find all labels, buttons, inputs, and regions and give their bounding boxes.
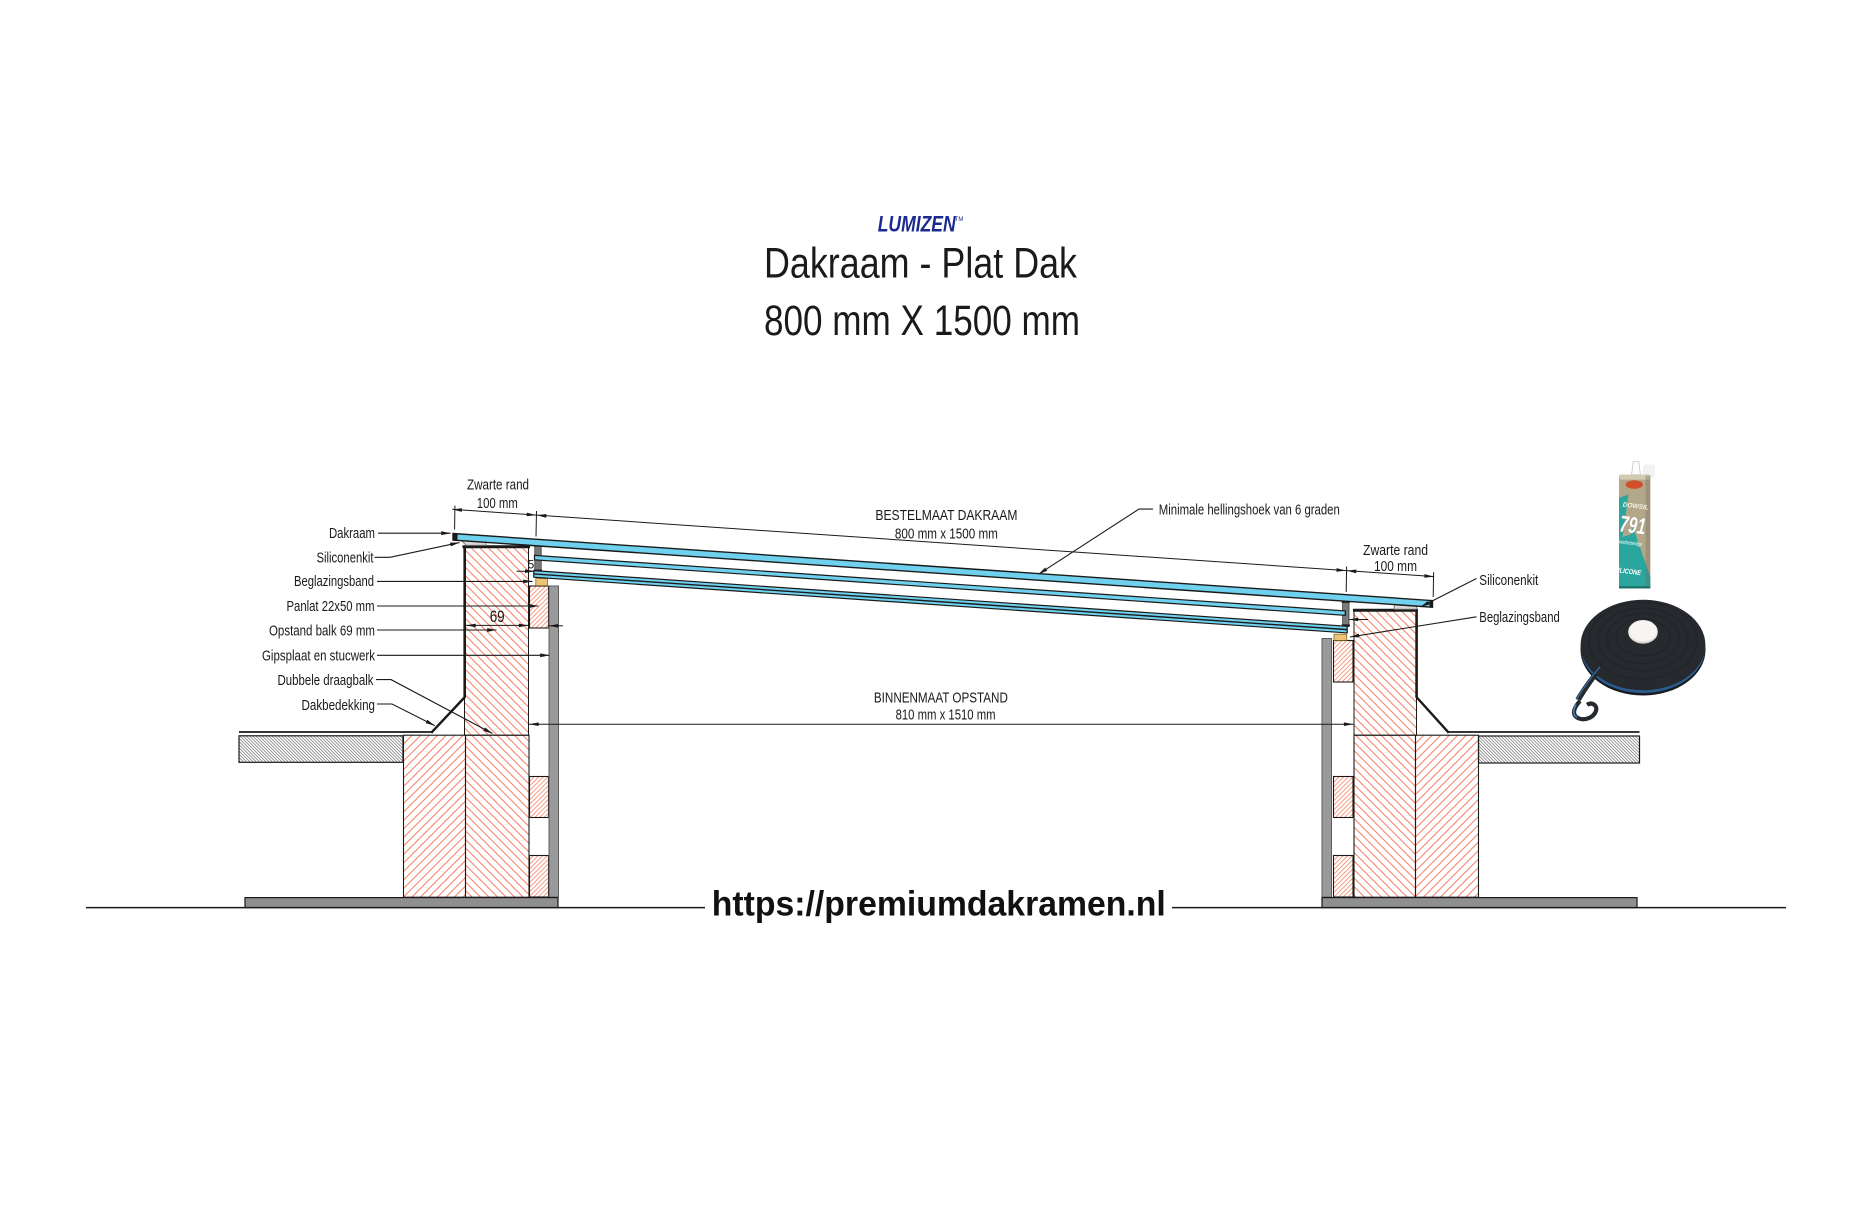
svg-text:Beglazingsband: Beglazingsband (294, 573, 374, 590)
svg-text:Zwarte rand: Zwarte rand (467, 477, 529, 494)
svg-text:Panlat 22x50 mm: Panlat 22x50 mm (287, 598, 375, 615)
svg-text:800 mm x 1500 mm: 800 mm x 1500 mm (895, 526, 998, 543)
svg-text:Minimale hellingshoek van 6 gr: Minimale hellingshoek van 6 graden (1159, 502, 1340, 519)
svg-text:100 mm: 100 mm (1374, 558, 1417, 575)
svg-text:Dubbele draagbalk: Dubbele draagbalk (278, 672, 374, 689)
svg-text:Gipsplaat en stucwerk: Gipsplaat en stucwerk (262, 647, 375, 664)
svg-text:Siliconenkit: Siliconenkit (1479, 572, 1539, 589)
svg-text:Opstand balk 69 mm: Opstand balk 69 mm (269, 622, 375, 639)
svg-text:Zwarte rand: Zwarte rand (1363, 542, 1428, 559)
svg-text:BESTELMAAT DAKRAAM: BESTELMAAT DAKRAAM (875, 507, 1017, 524)
svg-text:Beglazingsband: Beglazingsband (1479, 609, 1560, 626)
svg-text:100 mm: 100 mm (477, 495, 518, 512)
svg-text:Siliconenkit: Siliconenkit (317, 549, 375, 566)
svg-text:5: 5 (528, 557, 535, 571)
svg-text:Dakraam: Dakraam (329, 525, 375, 542)
svg-text:791: 791 (1618, 510, 1647, 539)
svg-text:LUMIZEN: LUMIZEN (878, 212, 957, 237)
svg-text:https://premiumdakramen.nl: https://premiumdakramen.nl (712, 884, 1166, 923)
svg-text:BINNENMAAT OPSTAND: BINNENMAAT OPSTAND (874, 690, 1008, 707)
svg-text:800 mm X 1500 mm: 800 mm X 1500 mm (764, 297, 1080, 345)
svg-text:69: 69 (490, 608, 505, 626)
svg-text:Dakraam - Plat Dak: Dakraam - Plat Dak (764, 240, 1077, 288)
svg-text:Dakbedekking: Dakbedekking (302, 697, 376, 714)
svg-text:810 mm x 1510 mm: 810 mm x 1510 mm (896, 707, 996, 724)
svg-text:TM: TM (955, 217, 964, 223)
